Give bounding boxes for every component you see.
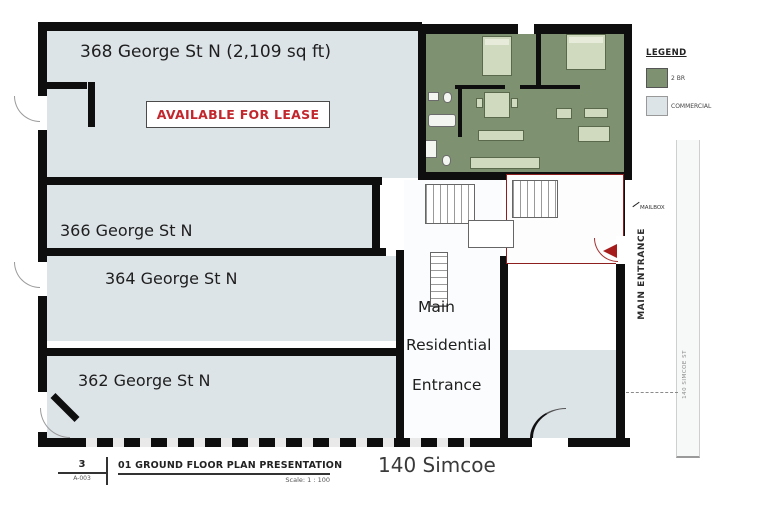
legend-label-commercial: COMMERCIAL bbox=[671, 103, 711, 110]
residential-entrance-label-line2: Residential bbox=[406, 336, 491, 354]
kitchen-counter-icon bbox=[470, 157, 540, 169]
legend-title: LEGEND bbox=[646, 48, 736, 58]
corridor-wall-right bbox=[500, 256, 508, 447]
title-block-line bbox=[58, 472, 106, 474]
apartment-wall-left bbox=[418, 24, 426, 180]
lease-badge-text: AVAILABLE FOR LEASE bbox=[157, 107, 320, 122]
detail-number: 3 bbox=[62, 459, 102, 470]
kitchen-counter-icon bbox=[478, 130, 524, 141]
legend-swatch-2br bbox=[646, 68, 668, 88]
exterior-wall-left bbox=[38, 22, 47, 447]
floor-plan-sheet: 140 SIMCOE ST 368 George St N (2,109 sq … bbox=[0, 0, 760, 505]
apartment-partition-wall bbox=[458, 85, 462, 137]
title-block-line bbox=[118, 473, 330, 475]
party-wall-364-362 bbox=[38, 348, 400, 356]
mailbox-leader-line bbox=[632, 202, 639, 207]
legend-item-commercial: COMMERCIAL bbox=[646, 96, 736, 116]
sheet-number: A-003 bbox=[62, 475, 102, 482]
stair-landing bbox=[468, 220, 514, 248]
legend-item-2br: 2 BR bbox=[646, 68, 736, 88]
closet-partition bbox=[88, 82, 95, 127]
door-gap bbox=[532, 438, 568, 447]
bathtub-icon bbox=[428, 114, 456, 127]
drawing-title: 01 GROUND FLOOR PLAN PRESENTATION bbox=[118, 460, 342, 471]
residential-entrance-label-line1: Main bbox=[418, 298, 455, 316]
apartment-partition-wall bbox=[536, 33, 541, 85]
party-wall-368-366 bbox=[38, 177, 382, 185]
door-swing-icon bbox=[14, 262, 40, 288]
exterior-wall-right-lower bbox=[616, 264, 625, 447]
unit-364-label: 364 George St N bbox=[105, 269, 238, 288]
closet-partition bbox=[47, 82, 87, 89]
corridor-wall-left bbox=[396, 250, 404, 447]
apartment-wall-right bbox=[624, 24, 632, 180]
main-entrance-arrow-icon bbox=[603, 244, 617, 258]
toilet-icon bbox=[443, 92, 452, 103]
pillow-icon bbox=[569, 37, 603, 43]
legend-label-2br: 2 BR bbox=[671, 75, 685, 82]
bed-icon bbox=[566, 34, 606, 70]
bed-icon bbox=[482, 36, 512, 76]
apartment-partition-wall bbox=[520, 85, 580, 89]
residential-entrance-label-line3: Entrance bbox=[412, 376, 481, 394]
exterior-wall-bottom bbox=[38, 438, 70, 447]
stairs bbox=[425, 184, 475, 224]
unit-362-room bbox=[46, 356, 398, 439]
door-swing-icon bbox=[14, 96, 40, 122]
pillow-icon bbox=[485, 39, 509, 45]
exterior-wall-top bbox=[38, 22, 422, 31]
sofa-icon bbox=[578, 126, 610, 142]
tv-unit-icon bbox=[584, 108, 608, 118]
wall-366-right bbox=[372, 177, 380, 256]
stairs bbox=[512, 180, 558, 218]
mailbox-note: MAILBOX bbox=[640, 205, 665, 211]
street-name-label: 140 SIMCOE ST bbox=[682, 350, 688, 399]
legend-swatch-commercial bbox=[646, 96, 668, 116]
chair-icon bbox=[511, 98, 518, 108]
unit-368-label: 368 George St N (2,109 sq ft) bbox=[80, 42, 331, 62]
party-wall-366-364 bbox=[38, 248, 386, 256]
sink-icon bbox=[428, 92, 439, 101]
extension-dashed-line bbox=[626, 392, 678, 393]
storefront-dashed-wall bbox=[70, 438, 470, 447]
unit-366-label: 366 George St N bbox=[60, 221, 193, 240]
sidewalk-band bbox=[676, 140, 700, 458]
dining-table-icon bbox=[484, 92, 510, 118]
plan-caption: 140 Simcoe bbox=[378, 453, 496, 477]
window-gap bbox=[518, 24, 534, 34]
lease-badge: AVAILABLE FOR LEASE bbox=[146, 101, 330, 128]
main-entrance-label: MAIN ENTRANCE bbox=[637, 228, 647, 320]
toilet-icon bbox=[442, 155, 451, 166]
coffee-table-icon bbox=[556, 108, 572, 119]
apartment-partition-wall bbox=[455, 85, 505, 89]
legend: LEGEND 2 BR COMMERCIAL bbox=[646, 48, 736, 116]
chair-icon bbox=[476, 98, 483, 108]
drawing-scale: Scale: 1 : 100 bbox=[118, 476, 330, 484]
unit-362-label: 362 George St N bbox=[78, 371, 211, 390]
title-block-divider bbox=[106, 457, 108, 485]
